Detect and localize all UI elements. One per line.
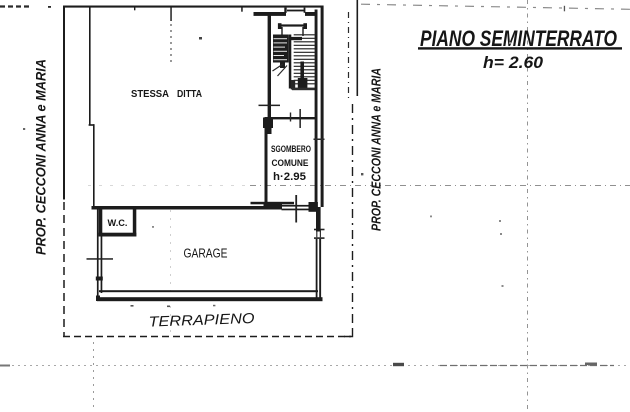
svg-text:W.C.: W.C. bbox=[108, 218, 128, 229]
svg-text:PIANO SEMINTERRATO: PIANO SEMINTERRATO bbox=[420, 26, 617, 51]
svg-text:COMUNE: COMUNE bbox=[272, 158, 309, 169]
svg-text:SGOMBERO: SGOMBERO bbox=[271, 144, 311, 155]
svg-text:TERRAPIENO: TERRAPIENO bbox=[148, 311, 254, 331]
svg-text:STESSA: STESSA bbox=[131, 89, 169, 100]
svg-text:DITTA: DITTA bbox=[177, 89, 202, 100]
svg-text:PROP. CECCONI ANNA e MARIA: PROP. CECCONI ANNA e MARIA bbox=[369, 68, 384, 231]
svg-text:PROP. CECCONI ANNA e MARIA: PROP. CECCONI ANNA e MARIA bbox=[33, 59, 48, 255]
svg-text:GARAGE: GARAGE bbox=[184, 246, 228, 261]
svg-text:h·2.95: h·2.95 bbox=[273, 171, 306, 183]
svg-text:h= 2.60: h= 2.60 bbox=[483, 53, 544, 72]
